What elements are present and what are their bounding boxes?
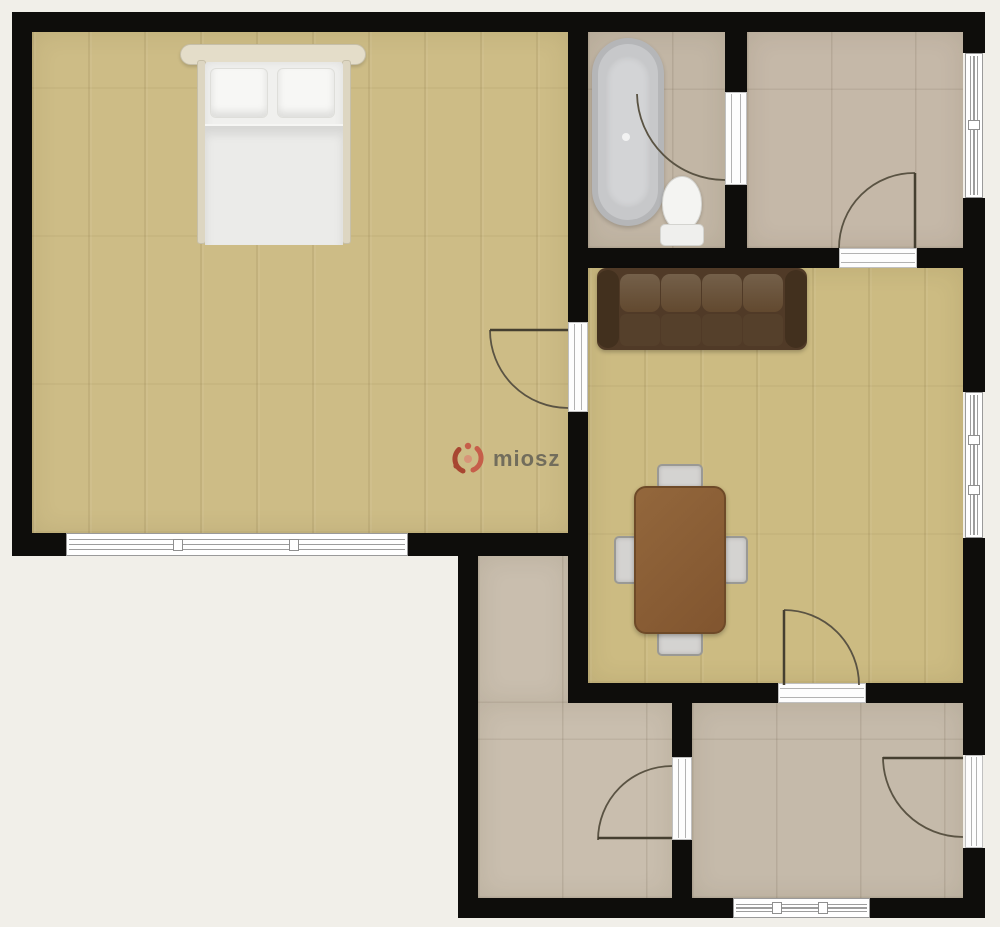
wall-bedroom-separator-upper	[568, 32, 588, 322]
bottom-room-window	[733, 898, 870, 918]
miosz-logo	[449, 440, 487, 478]
wall-hall-room-separator-lower	[672, 840, 692, 918]
top-right-room-door-opening	[839, 248, 917, 268]
wall-bathroom-right-lower	[725, 185, 747, 248]
wall-hallway-left	[458, 556, 478, 918]
wall-left	[12, 32, 32, 556]
sofa-back-cushion	[702, 274, 742, 312]
window-mullion	[968, 435, 980, 445]
sofa-seat-cushion	[620, 314, 660, 346]
bottom-right-room-floor	[692, 703, 963, 898]
hallway-door-opening	[672, 757, 692, 840]
toilet-bowl	[662, 176, 702, 230]
wall-right-d	[963, 848, 985, 918]
floor-plan: miosz	[0, 0, 1000, 927]
wall-living-top-a	[568, 248, 839, 268]
window-mullion	[173, 539, 183, 551]
sofa-back-cushion	[620, 274, 660, 312]
bed-pillow-left	[210, 68, 268, 118]
window-mullion	[772, 902, 782, 914]
bathroom-door-opening	[725, 92, 747, 185]
wall-bedroom-separator-lower	[568, 412, 588, 703]
window-mullion	[968, 120, 980, 130]
wall-living-bottom-b	[866, 683, 985, 703]
window-mullion	[289, 539, 299, 551]
wall-bedroom-bottom-right	[408, 533, 588, 556]
hallway-floor-lower	[478, 703, 672, 898]
toilet-tank	[660, 224, 704, 246]
top-right-room-window	[965, 53, 983, 198]
sofa-armrest-left	[597, 270, 619, 348]
sofa-back-cushion	[743, 274, 783, 312]
wall-right-c	[963, 538, 985, 755]
top-right-room-floor	[747, 32, 963, 248]
bedroom-door-opening	[568, 322, 588, 412]
hallway-floor-upper	[478, 556, 568, 703]
sofa-seat-cushion	[743, 314, 783, 346]
living-room-door-opening	[778, 683, 866, 703]
bed-rail-right	[342, 60, 351, 244]
wall-bedroom-bottom-left	[12, 533, 66, 556]
wall-bottom-right-room-bottom-a	[692, 898, 733, 918]
sofa-seat-cushion	[661, 314, 701, 346]
window-mullion	[968, 485, 980, 495]
watermark-text: miosz	[493, 446, 560, 472]
watermark: miosz	[449, 440, 560, 478]
wall-hallway-bottom	[458, 898, 692, 918]
wall-right-a	[963, 32, 985, 53]
wall-top	[12, 12, 985, 32]
wall-living-top-b	[917, 248, 985, 268]
bed-duvet	[205, 124, 343, 245]
exterior-door-opening	[965, 755, 983, 848]
bed-pillow-right	[277, 68, 335, 118]
bathtub-drain	[622, 133, 630, 141]
wall-bathroom-right-upper	[725, 32, 747, 92]
wall-right-b	[963, 198, 985, 392]
bedroom-window	[66, 533, 408, 556]
bathtub-basin	[606, 56, 650, 208]
sofa-seat-cushion	[702, 314, 742, 346]
wall-hall-room-separator-upper	[672, 703, 692, 757]
dining-table	[634, 486, 726, 634]
window-mullion	[818, 902, 828, 914]
living-room-window	[965, 392, 983, 538]
sofa-armrest-right	[785, 270, 807, 348]
sofa-back-cushion	[661, 274, 701, 312]
wall-living-bottom-a	[568, 683, 778, 703]
